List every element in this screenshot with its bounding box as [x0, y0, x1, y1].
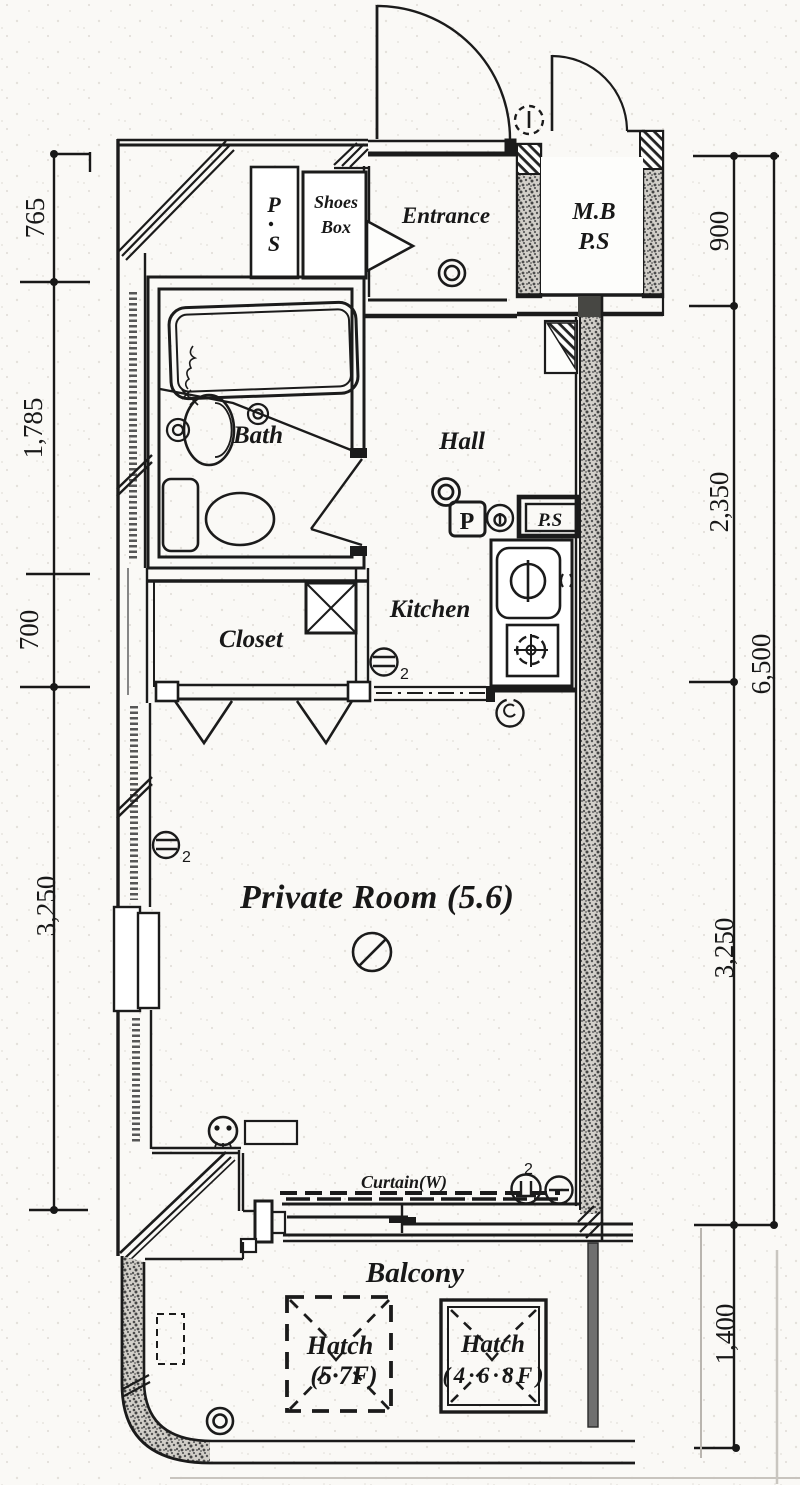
svg-text:2,350: 2,350 — [704, 472, 734, 533]
svg-text:Entrance: Entrance — [401, 203, 490, 228]
svg-text:P: P — [266, 192, 281, 217]
svg-text:(4·6·8F): (4·6·8F) — [443, 1363, 544, 1388]
svg-text:2: 2 — [400, 666, 409, 683]
svg-text:P: P — [460, 509, 475, 535]
svg-text:765: 765 — [20, 198, 50, 239]
svg-text:900: 900 — [704, 211, 734, 252]
svg-text:3,250: 3,250 — [31, 876, 61, 937]
svg-text:Bath: Bath — [232, 422, 283, 449]
svg-text:2: 2 — [524, 1161, 533, 1178]
svg-text:Private Room (5.6): Private Room (5.6) — [239, 879, 514, 916]
svg-text:Closet: Closet — [219, 626, 284, 653]
svg-text:700: 700 — [14, 610, 44, 651]
svg-text:3,250: 3,250 — [709, 918, 739, 979]
svg-text:Kitchen: Kitchen — [389, 596, 471, 623]
svg-text:1,785: 1,785 — [18, 398, 48, 459]
svg-text:P.S: P.S — [578, 229, 610, 255]
svg-text:M.B: M.B — [571, 199, 615, 225]
svg-text:Hatch: Hatch — [460, 1331, 525, 1358]
svg-text:1,400: 1,400 — [710, 1304, 740, 1365]
svg-text:6,500: 6,500 — [746, 634, 776, 695]
svg-text:Box: Box — [320, 217, 351, 237]
svg-text:Shoes: Shoes — [314, 192, 358, 212]
svg-text:Hatch: Hatch — [306, 1331, 373, 1360]
svg-text:P.S: P.S — [537, 510, 562, 531]
svg-text:(5·7F): (5·7F) — [310, 1361, 377, 1390]
svg-text:Curtain(W): Curtain(W) — [361, 1172, 447, 1193]
svg-text:2: 2 — [182, 849, 191, 866]
svg-text:S: S — [268, 231, 280, 256]
svg-text:Hall: Hall — [438, 428, 485, 455]
svg-text:Balcony: Balcony — [365, 1257, 464, 1289]
